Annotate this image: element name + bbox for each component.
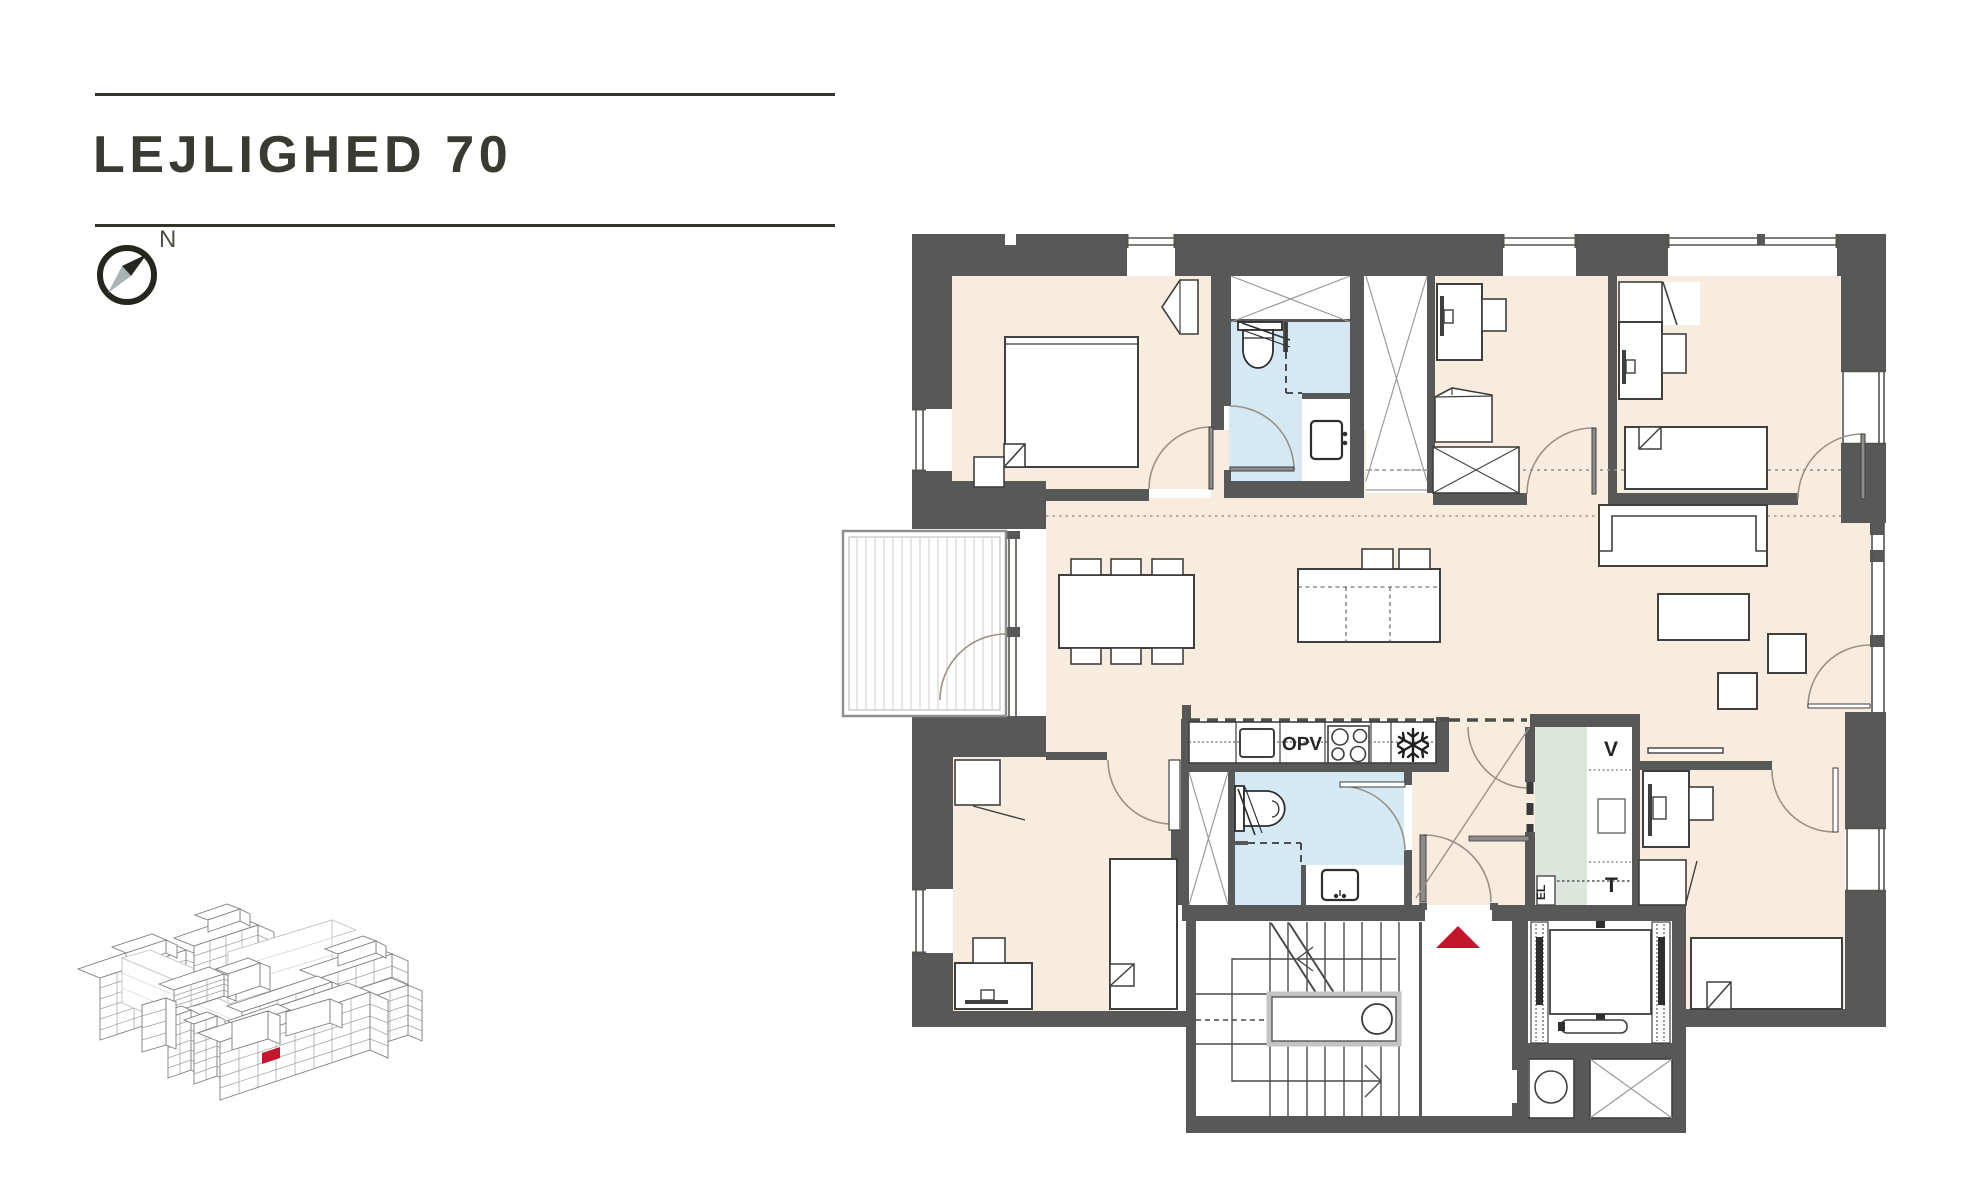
svg-text:V: V — [1604, 738, 1618, 761]
svg-text:OPV: OPV — [1282, 734, 1322, 755]
svg-text:N: N — [159, 226, 176, 253]
svg-text:EL: EL — [1534, 885, 1548, 900]
svg-text:LEJLIGHED 70: LEJLIGHED 70 — [93, 126, 512, 184]
svg-text:T: T — [1605, 874, 1618, 897]
